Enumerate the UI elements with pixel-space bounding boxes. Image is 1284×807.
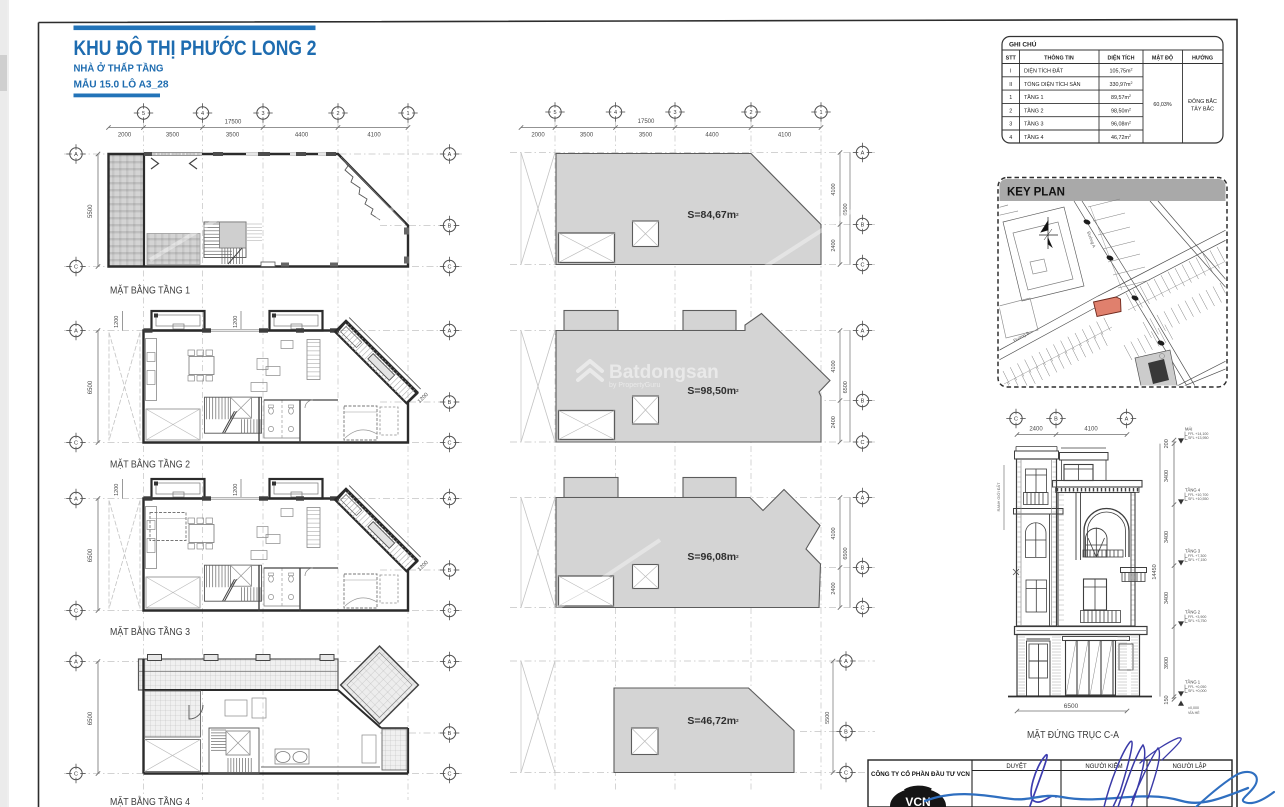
svg-text:Batdongsan: Batdongsan <box>609 362 719 383</box>
svg-text:A: A <box>861 329 865 335</box>
svg-text:B: B <box>861 399 865 405</box>
svg-text:S=84,67m2: S=84,67m2 <box>687 209 739 221</box>
svg-text:B: B <box>448 731 452 737</box>
svg-text:3900: 3900 <box>1164 657 1170 669</box>
svg-text:4100: 4100 <box>831 183 837 195</box>
svg-text:4100: 4100 <box>778 133 792 139</box>
svg-text:MẶT BẰNG TẦNG 2: MẶT BẰNG TẦNG 2 <box>110 458 190 471</box>
svg-text:SFL +0,000: SFL +0,000 <box>1188 689 1207 693</box>
svg-text:II: II <box>1009 82 1012 88</box>
svg-text:C: C <box>448 609 452 615</box>
svg-text:17500: 17500 <box>225 120 242 126</box>
svg-text:C: C <box>448 265 452 271</box>
svg-text:2: 2 <box>336 111 339 117</box>
svg-text:1200: 1200 <box>114 484 120 496</box>
svg-text:A: A <box>74 660 78 666</box>
svg-text:4400: 4400 <box>705 133 719 139</box>
svg-text:NHÀ Ở THẤP TẦNG: NHÀ Ở THẤP TẦNG <box>74 62 164 75</box>
svg-text:5500: 5500 <box>88 204 94 218</box>
svg-text:A: A <box>861 496 865 502</box>
svg-text:105,75m2: 105,75m2 <box>1110 68 1133 75</box>
svg-text:SFL +10,550: SFL +10,550 <box>1188 497 1209 501</box>
svg-text:330,97m2: 330,97m2 <box>1110 81 1133 88</box>
svg-text:C: C <box>74 772 78 778</box>
svg-text:TẦNG 3: TẦNG 3 <box>1024 121 1043 128</box>
svg-text:C: C <box>1014 417 1018 423</box>
svg-text:C: C <box>74 265 78 271</box>
svg-text:3400: 3400 <box>1164 470 1170 482</box>
svg-text:NGƯỜI LẬP: NGƯỜI LẬP <box>1173 763 1207 770</box>
svg-text:3500: 3500 <box>226 133 240 139</box>
svg-text:TẦNG 2: TẦNG 2 <box>1185 610 1201 615</box>
svg-text:TẦNG 4: TẦNG 4 <box>1185 488 1201 493</box>
svg-text:1200: 1200 <box>233 484 239 496</box>
svg-text:1: 1 <box>819 110 822 116</box>
svg-text:A: A <box>448 497 452 503</box>
svg-text:A: A <box>74 329 78 335</box>
svg-text:B: B <box>448 224 452 230</box>
svg-text:C: C <box>74 441 78 447</box>
svg-text:S=46,72m2: S=46,72m2 <box>687 715 739 727</box>
svg-text:I: I <box>1010 69 1012 75</box>
svg-text:6500: 6500 <box>88 548 94 562</box>
svg-text:B: B <box>861 566 865 572</box>
svg-text:150: 150 <box>1164 695 1170 704</box>
svg-text:TẦNG 2: TẦNG 2 <box>1024 107 1043 114</box>
svg-text:2000: 2000 <box>531 133 545 139</box>
svg-text:6500: 6500 <box>1064 703 1079 710</box>
svg-text:B: B <box>448 568 452 574</box>
svg-text:4: 4 <box>1009 135 1012 141</box>
svg-text:3500: 3500 <box>639 133 653 139</box>
svg-text:6500: 6500 <box>843 381 849 393</box>
svg-text:B: B <box>844 730 848 736</box>
svg-text:GHI CHÚ: GHI CHÚ <box>1009 40 1037 49</box>
svg-text:1: 1 <box>1009 95 1012 101</box>
svg-text:C: C <box>74 609 78 615</box>
svg-text:4100: 4100 <box>831 360 837 372</box>
svg-text:5: 5 <box>142 111 145 117</box>
svg-text:MẬT ĐỘ: MẬT ĐỘ <box>1152 54 1173 62</box>
svg-text:46,72m2: 46,72m2 <box>1111 134 1131 141</box>
svg-text:5: 5 <box>553 110 556 116</box>
svg-text:C: C <box>861 263 865 269</box>
svg-text:A: A <box>448 660 452 666</box>
svg-text:VỈA HÈ: VỈA HÈ <box>1188 710 1200 715</box>
svg-text:1200: 1200 <box>233 316 239 328</box>
svg-text:MẪU 15.0 LÔ A3_28: MẪU 15.0 LÔ A3_28 <box>74 78 169 91</box>
svg-text:3400: 3400 <box>1164 592 1170 604</box>
svg-text:2400: 2400 <box>831 416 837 428</box>
svg-text:TÂY BẮC: TÂY BẮC <box>1191 105 1214 113</box>
svg-text:200: 200 <box>1164 439 1170 448</box>
svg-text:DUYỆT: DUYỆT <box>1006 762 1027 770</box>
svg-text:A: A <box>74 497 78 503</box>
svg-text:CÔNG TY CỔ PHẦN ĐẦU TƯ VCN: CÔNG TY CỔ PHẦN ĐẦU TƯ VCN <box>871 770 970 778</box>
svg-text:4100: 4100 <box>831 527 837 539</box>
svg-text:TẦNG 4: TẦNG 4 <box>1024 134 1043 141</box>
svg-text:3500: 3500 <box>580 133 594 139</box>
svg-text:MẶT BẰNG TẦNG 1: MẶT BẰNG TẦNG 1 <box>110 284 190 297</box>
svg-text:S=98,50m2: S=98,50m2 <box>687 385 739 397</box>
svg-text:MẶT ĐỨNG TRỤC C-A: MẶT ĐỨNG TRỤC C-A <box>1027 728 1119 741</box>
svg-text:4400: 4400 <box>295 133 309 139</box>
svg-text:THÔNG TIN: THÔNG TIN <box>1044 54 1074 62</box>
svg-text:TẦNG 1: TẦNG 1 <box>1185 680 1201 685</box>
svg-text:A: A <box>1125 417 1129 423</box>
svg-text:6500: 6500 <box>88 711 94 725</box>
svg-text:98,50m2: 98,50m2 <box>1111 107 1131 114</box>
svg-text:4: 4 <box>201 111 204 117</box>
svg-text:KHU ĐÔ THỊ PHƯỚC LONG 2: KHU ĐÔ THỊ PHƯỚC LONG 2 <box>74 35 317 60</box>
svg-text:DIỆN TÍCH ĐẤT: DIỆN TÍCH ĐẤT <box>1024 67 1064 75</box>
svg-text:MẶT BẰNG TẦNG 3: MẶT BẰNG TẦNG 3 <box>110 625 190 638</box>
svg-text:A: A <box>448 152 452 158</box>
svg-text:C: C <box>844 771 848 777</box>
svg-text:3500: 3500 <box>166 133 180 139</box>
svg-text:4100: 4100 <box>367 133 381 139</box>
svg-text:2400: 2400 <box>831 582 837 594</box>
svg-text:SFL +3,750: SFL +3,750 <box>1188 619 1207 623</box>
svg-text:6500: 6500 <box>843 547 849 559</box>
svg-text:B: B <box>448 400 452 406</box>
svg-text:DIỆN TÍCH: DIỆN TÍCH <box>1108 54 1135 62</box>
svg-text:14450: 14450 <box>1152 564 1158 579</box>
svg-text:B: B <box>1054 417 1058 423</box>
svg-text:60,03%: 60,03% <box>1153 102 1171 108</box>
svg-text:A: A <box>844 659 848 665</box>
svg-text:A: A <box>74 152 78 158</box>
svg-text:3400: 3400 <box>1164 531 1170 543</box>
svg-text:3: 3 <box>1009 122 1012 128</box>
svg-text:4100: 4100 <box>1084 427 1098 433</box>
svg-text:2: 2 <box>749 110 752 116</box>
svg-text:TẦNG 3: TẦNG 3 <box>1185 549 1201 554</box>
svg-text:TỔNG DIỆN TÍCH SÀN: TỔNG DIỆN TÍCH SÀN <box>1024 80 1081 88</box>
svg-text:C: C <box>861 440 865 446</box>
svg-text:1: 1 <box>406 111 409 117</box>
svg-text:KEY PLAN: KEY PLAN <box>1007 187 1065 199</box>
svg-text:2: 2 <box>1009 108 1012 114</box>
svg-text:TẦNG 1: TẦNG 1 <box>1024 94 1043 101</box>
svg-text:17500: 17500 <box>638 119 655 125</box>
svg-text:4: 4 <box>614 110 617 116</box>
svg-text:SFL +7,150: SFL +7,150 <box>1188 558 1207 562</box>
svg-text:STT: STT <box>1006 56 1017 62</box>
svg-text:96,08m2: 96,08m2 <box>1111 121 1131 128</box>
svg-text:SFL +13,950: SFL +13,950 <box>1188 436 1209 440</box>
svg-text:MẶT BẰNG TẦNG 4: MẶT BẰNG TẦNG 4 <box>110 795 190 807</box>
svg-text:2400: 2400 <box>1029 427 1043 433</box>
svg-text:A: A <box>861 151 865 157</box>
svg-text:±0,000: ±0,000 <box>1188 706 1199 710</box>
svg-text:S=96,08m2: S=96,08m2 <box>687 551 739 563</box>
svg-text:2400: 2400 <box>831 239 837 251</box>
svg-text:C: C <box>448 441 452 447</box>
svg-text:RANH GIỚI ĐẤT: RANH GIỚI ĐẤT <box>996 482 1001 511</box>
svg-text:6500: 6500 <box>88 380 94 394</box>
svg-text:C: C <box>448 772 452 778</box>
svg-text:by PropertyGuru: by PropertyGuru <box>609 382 660 389</box>
svg-text:B: B <box>861 223 865 229</box>
svg-text:3: 3 <box>673 110 676 116</box>
svg-text:MÁI: MÁI <box>1185 427 1192 432</box>
svg-text:HƯỚNG: HƯỚNG <box>1192 54 1213 62</box>
svg-text:A: A <box>448 329 452 335</box>
svg-text:ĐÔNG BẮC: ĐÔNG BẮC <box>1188 97 1217 105</box>
svg-text:C: C <box>861 606 865 612</box>
svg-text:3: 3 <box>261 111 264 117</box>
svg-text:1200: 1200 <box>114 316 120 328</box>
svg-text:5500: 5500 <box>825 712 831 724</box>
svg-text:89,57m2: 89,57m2 <box>1111 94 1131 101</box>
svg-text:2000: 2000 <box>118 133 132 139</box>
